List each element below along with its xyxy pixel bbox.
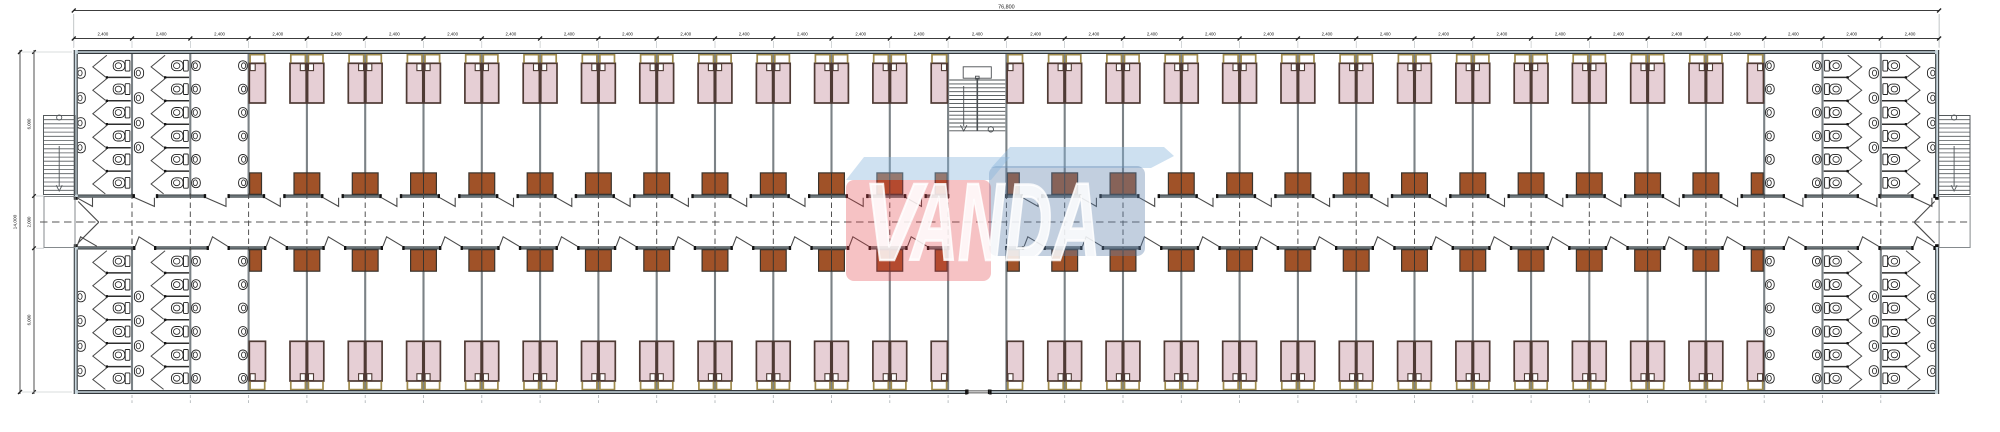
svg-text:2,400: 2,400 <box>1380 31 1391 36</box>
svg-text:2,400: 2,400 <box>1147 31 1158 36</box>
svg-text:2,400: 2,400 <box>1263 31 1274 36</box>
svg-text:2,400: 2,400 <box>1438 31 1449 36</box>
svg-text:2,400: 2,400 <box>855 31 866 36</box>
svg-text:2,400: 2,400 <box>797 31 808 36</box>
svg-text:2,400: 2,400 <box>1671 31 1682 36</box>
svg-text:2,400: 2,400 <box>1788 31 1799 36</box>
svg-text:2,400: 2,400 <box>1030 31 1041 36</box>
svg-text:2,400: 2,400 <box>1205 31 1216 36</box>
svg-text:D: D <box>1005 162 1052 284</box>
svg-text:2,400: 2,400 <box>1322 31 1333 36</box>
svg-text:2,400: 2,400 <box>214 31 225 36</box>
svg-text:2,400: 2,400 <box>1730 31 1741 36</box>
svg-text:76,800: 76,800 <box>998 4 1015 10</box>
svg-text:2,400: 2,400 <box>622 31 633 36</box>
svg-text:2,400: 2,400 <box>389 31 400 36</box>
svg-text:2,400: 2,400 <box>156 31 167 36</box>
svg-text:2,400: 2,400 <box>1846 31 1857 36</box>
svg-text:2,400: 2,400 <box>98 31 109 36</box>
svg-text:2,400: 2,400 <box>447 31 458 36</box>
svg-text:2,400: 2,400 <box>506 31 517 36</box>
svg-text:2,400: 2,400 <box>739 31 750 36</box>
svg-text:2,400: 2,400 <box>1497 31 1508 36</box>
svg-text:2,400: 2,400 <box>914 31 925 36</box>
svg-text:2,400: 2,400 <box>1905 31 1916 36</box>
svg-text:2,400: 2,400 <box>680 31 691 36</box>
svg-text:2,400: 2,400 <box>331 31 342 36</box>
svg-text:14,000: 14,000 <box>13 214 19 229</box>
svg-text:2,400: 2,400 <box>564 31 575 36</box>
svg-text:6,000: 6,000 <box>27 118 32 129</box>
svg-text:N: N <box>958 161 1005 284</box>
svg-text:6,000: 6,000 <box>27 314 32 325</box>
svg-text:2,400: 2,400 <box>1089 31 1100 36</box>
svg-text:2,400: 2,400 <box>272 31 283 36</box>
svg-text:2,400: 2,400 <box>1555 31 1566 36</box>
svg-text:2,000: 2,000 <box>27 216 32 227</box>
svg-text:2,400: 2,400 <box>1613 31 1624 36</box>
svg-text:A: A <box>910 162 958 284</box>
svg-text:A: A <box>1051 162 1101 284</box>
svg-text:2,400: 2,400 <box>972 31 983 36</box>
